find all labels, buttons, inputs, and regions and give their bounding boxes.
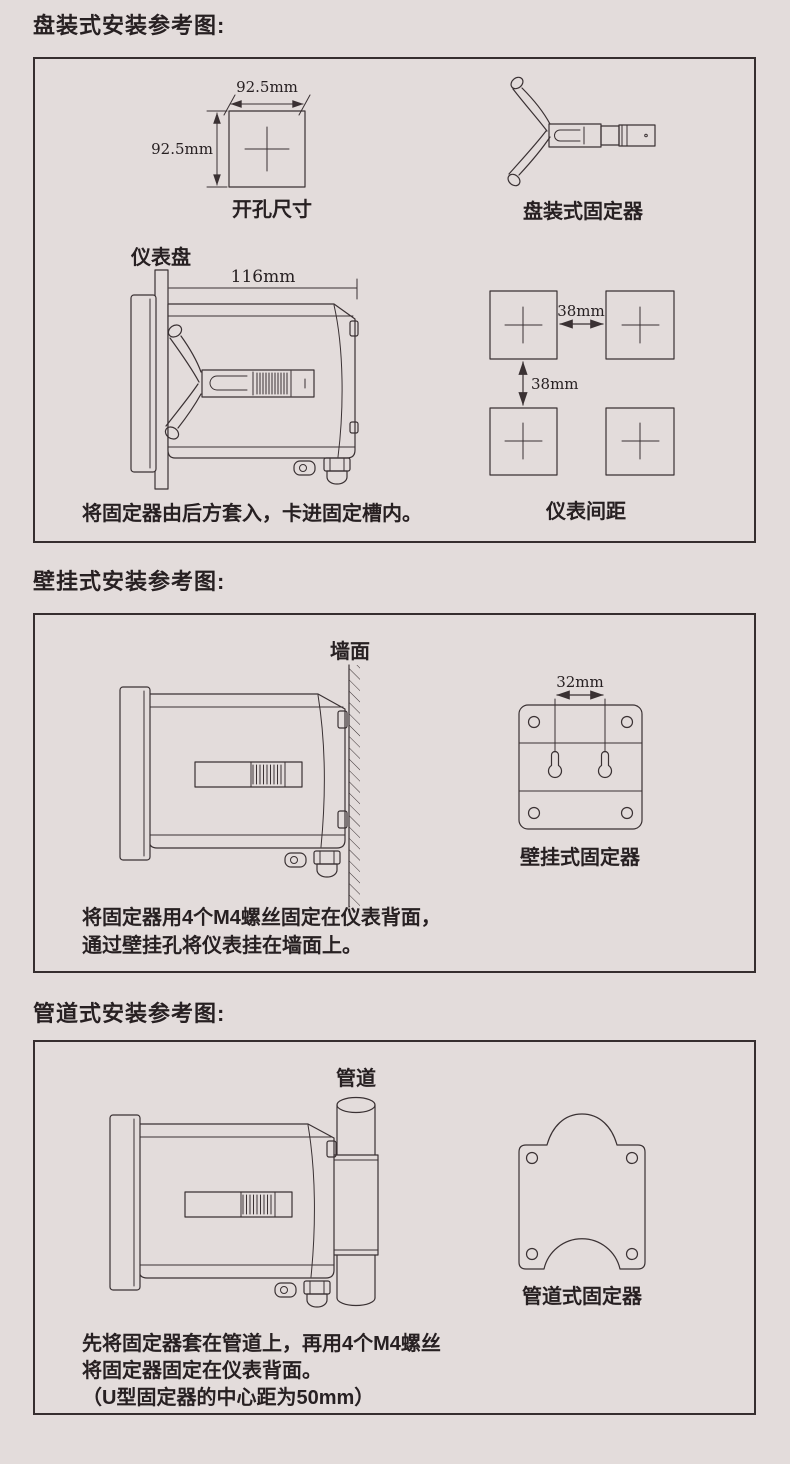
wall-fixer-drawing	[519, 695, 642, 829]
cutout-square-diagram	[207, 95, 310, 187]
section-wall-title: 壁挂式安装参考图:	[33, 564, 225, 596]
gap-vertical-dim: 38mm	[531, 375, 579, 393]
wall-side-view-drawing	[120, 665, 360, 907]
pipe-fixer-label: 管道式固定器	[482, 1280, 682, 1309]
wall-caption-line2: 通过壁挂孔将仪表挂在墙面上。	[82, 929, 362, 958]
section-pipe-title: 管道式安装参考图:	[33, 996, 225, 1028]
section-wall-diagram-box: 墙面 32mm 壁挂式固定器 将固定器用4个M4螺丝固定在仪表背面， 通过壁挂孔…	[33, 613, 756, 973]
pipe-caption-line2: 将固定器固定在仪表背面。	[82, 1354, 322, 1383]
cutout-label: 开孔尺寸	[192, 193, 352, 222]
cutout-width-dim: 92.5mm	[217, 78, 317, 96]
pipe-label: 管道	[316, 1062, 396, 1091]
section-panel-diagram-box: 92.5mm 92.5mm 开孔尺寸 盘装式固定器 仪表盘 116mm 38mm…	[33, 57, 756, 543]
cutout-height-dim: 92.5mm	[133, 140, 213, 158]
manual-page: 盘装式安装参考图:	[0, 0, 790, 1464]
pipe-caption-line3: （U型固定器的中心距为50mm）	[82, 1381, 374, 1410]
gap-horizontal-dim: 38mm	[541, 302, 621, 320]
wall-hatch	[349, 665, 360, 907]
section-panel-title: 盘装式安装参考图:	[33, 8, 225, 40]
panel-fixer-drawing	[506, 75, 655, 188]
pipe-caption-line1: 先将固定器套在管道上，再用4个M4螺丝	[82, 1327, 441, 1356]
wall-fixer-label: 壁挂式固定器	[480, 841, 680, 870]
panel-hatch-band	[155, 270, 168, 489]
panel-caption: 将固定器由后方套入，卡进固定槽内。	[82, 497, 422, 526]
hole-pitch-dim: 32mm	[540, 673, 620, 691]
panel-mount-drawing	[35, 59, 754, 541]
section-pipe-diagram-box: 管道 管道式固定器 先将固定器套在管道上，再用4个M4螺丝 将固定器固定在仪表背…	[33, 1040, 756, 1415]
spacing-label: 仪表间距	[486, 495, 686, 524]
instrument-panel-label: 仪表盘	[131, 241, 191, 270]
wall-caption-line1: 将固定器用4个M4螺丝固定在仪表背面，	[82, 901, 441, 930]
pipe-side-view-drawing	[110, 1098, 378, 1308]
wall-label: 墙面	[328, 635, 372, 664]
depth-dim: 116mm	[213, 267, 313, 287]
panel-fixer-label: 盘装式固定器	[483, 195, 683, 224]
pipe-fixer-drawing	[519, 1114, 645, 1269]
panel-side-view-drawing	[131, 270, 358, 489]
